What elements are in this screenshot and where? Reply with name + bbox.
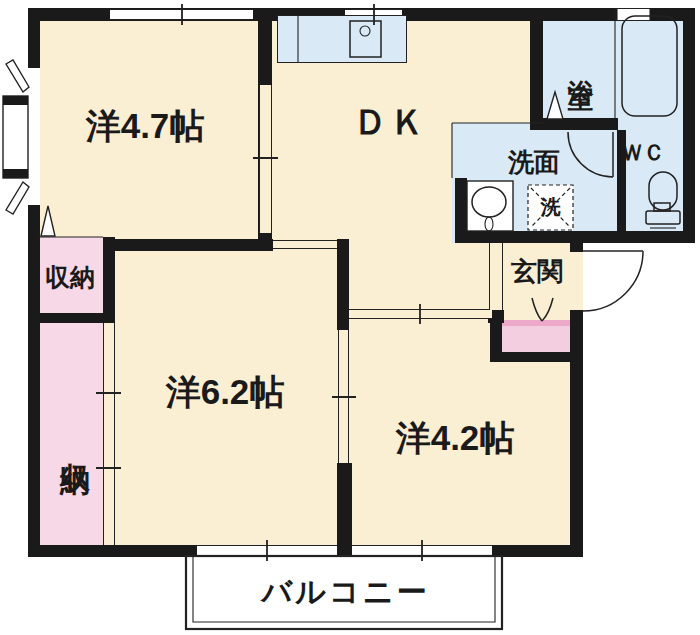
opening-tick-marks [96,4,422,561]
fixtures-overlay [0,0,700,635]
toilet-tank-icon [646,211,680,224]
room-label-wc: ＷＣ [614,141,672,165]
entrance-door-arc-icon [583,251,643,311]
kitchen-faucet-icon [360,26,370,36]
room-label-west42: 洋4.2帖 [355,419,555,458]
genkan-step-curve-icon [532,298,553,321]
room-label-washroom: 洗面 [499,148,569,177]
bay-window-cap [3,169,28,178]
room-label-storage-top: 収納 [37,264,103,292]
bay-window-icon [3,96,28,178]
room-label-balcony: バルコニー [228,575,463,608]
room-label-dk: ＤＫ [325,103,455,142]
label-washer: 洗 [528,196,573,218]
room-label-storage-tall: 収納 [52,392,92,492]
room-label-west47: 洋4.7帖 [45,107,245,146]
casement-pane-icon [6,60,29,92]
closet-folding-door-icon [41,206,55,236]
floor-plan: 洋4.7帖 ＤＫ 浴室 洗面 ＷＣ 洗 収納 収納 玄関 洋6.2帖 洋4.2帖… [0,0,700,635]
room-label-bath: 浴室 [561,28,595,98]
washroom-door-arc-icon [568,132,613,177]
bath-window-edges [617,8,650,21]
bay-window-cap [3,96,28,105]
bathtub-icon [622,16,677,116]
toilet-bowl-icon [649,172,677,210]
room-label-west62: 洋6.2帖 [125,373,325,412]
casement-pane-icon [6,182,29,214]
room-label-genkan: 玄関 [502,257,572,286]
